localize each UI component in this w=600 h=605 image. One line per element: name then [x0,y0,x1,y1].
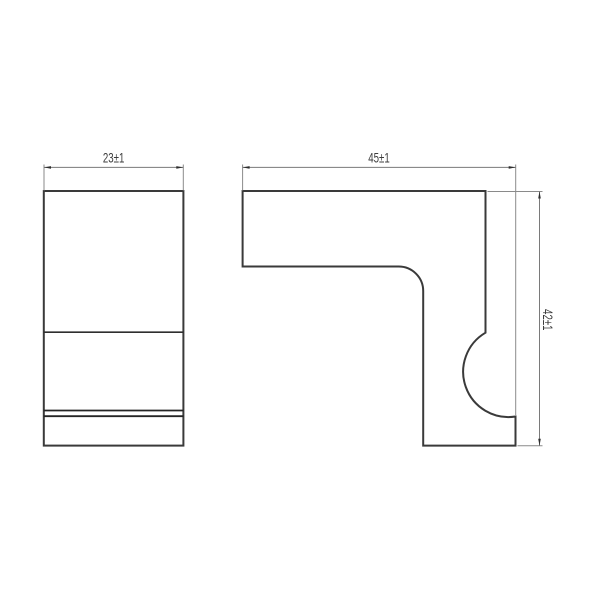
svg-text:23±1: 23±1 [103,150,125,165]
svg-text:45±1: 45±1 [368,150,390,165]
svg-text:42±1: 42±1 [540,309,555,331]
